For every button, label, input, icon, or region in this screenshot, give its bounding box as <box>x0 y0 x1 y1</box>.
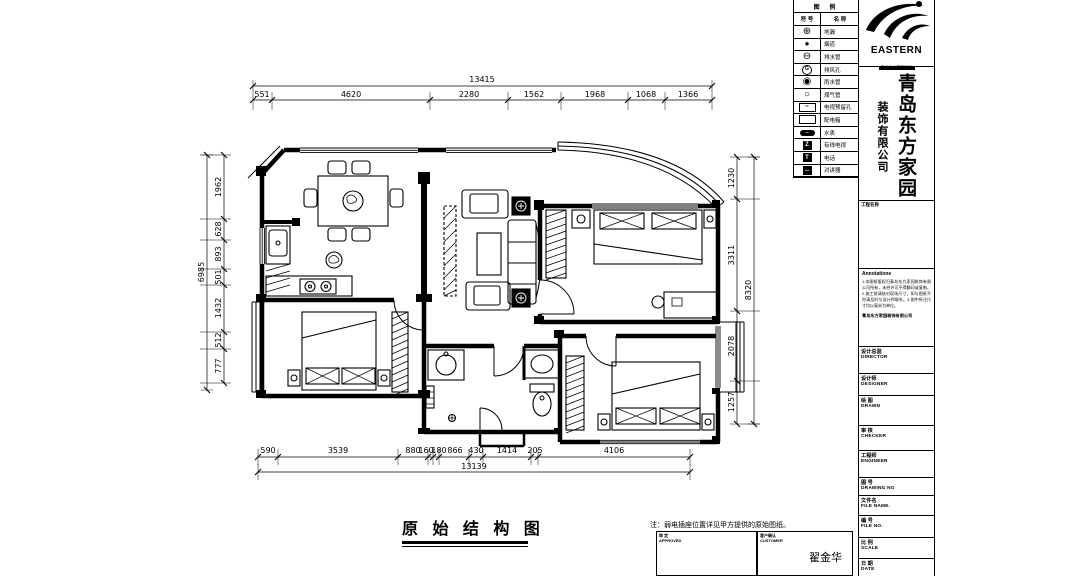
drawing-title-text: 原 始 结 构 图 <box>402 515 528 539</box>
annotations-heading: Annotations <box>862 271 931 277</box>
flue-icon <box>794 39 821 51</box>
legend-row: 有线电视 <box>794 139 859 152</box>
field-designer: 设计师 DESIGNER <box>859 373 934 395</box>
fine-print: 1.本图纸版权归青岛东方家园装饰有限公司所有，未经许可不得翻印或复制。2.施工前… <box>862 279 931 309</box>
svg-text:1414: 1414 <box>497 446 517 455</box>
power-box-icon <box>799 115 816 124</box>
intercom-icon <box>803 166 812 175</box>
company-suffix: 装饰有限公司 <box>874 101 890 200</box>
svg-text:590: 590 <box>260 446 275 455</box>
annotations: Annotations 1.本图纸版权归青岛东方家园装饰有限公司所有，未经许可不… <box>859 268 934 346</box>
floor-plan: 13415 551 4620 2280 1562 1968 1068 1366 … <box>0 0 800 576</box>
legend-table: 图 例 符 号 名 称 地漏 烟道 排水管 排风孔 雨水管 煤气管 电视预留孔 … <box>793 0 860 178</box>
project-name-box: 工程名称 <box>859 200 934 268</box>
svg-text:3311: 3311 <box>727 245 736 265</box>
legend-row: 煤气管 <box>794 89 859 102</box>
legend-row: 电视预留孔 <box>794 102 859 115</box>
svg-text:628: 628 <box>214 221 223 236</box>
tv-hole-icon <box>799 103 816 112</box>
bedroom3-furniture <box>288 312 408 396</box>
floor-drain-icon <box>794 26 821 38</box>
legend-row: 电话 <box>794 152 859 165</box>
gas-pipe-icon <box>794 89 821 101</box>
field-engineer: 工程师 ENGINEER <box>859 450 934 477</box>
title-block: EASTERN 青岛东方家园装饰 装饰有限公司 青岛东方家园 工程名称 Anno… <box>858 0 935 576</box>
company-logo: EASTERN 青岛东方家园装饰 <box>859 0 934 66</box>
field-file-no: 编 号 FILE NO. <box>859 515 934 537</box>
bedroom2-furniture <box>566 356 714 433</box>
svg-text:430: 430 <box>468 446 483 455</box>
svg-text:1366: 1366 <box>678 90 698 99</box>
approval-label-en: APPROVED <box>659 538 681 543</box>
legend-row: 地漏 <box>794 26 859 39</box>
svg-text:777: 777 <box>214 358 223 373</box>
svg-text:1068: 1068 <box>636 90 656 99</box>
approval-box: 审 定 APPROVED <box>656 531 757 576</box>
svg-text:4106: 4106 <box>604 446 624 455</box>
customer-box: 客户确认 CUSTOMER 翟金华 <box>757 531 853 576</box>
cable-tv-icon <box>803 141 812 150</box>
drawing-title: 原 始 结 构 图 <box>402 515 528 547</box>
legend-row: 排风孔 <box>794 64 859 77</box>
svg-text:866: 866 <box>447 446 462 455</box>
field-director: 设计总监 DIRECTOR <box>859 346 934 373</box>
fine-print-footer: 青岛东方家园装饰有限公司 <box>862 313 931 319</box>
field-drawn: 绘 图 DRAWN <box>859 395 934 425</box>
drawing-sheet: 13415 551 4620 2280 1562 1968 1068 1366 … <box>0 0 1074 576</box>
field-checker: 审 核 CHECKER <box>859 425 934 450</box>
title-underline-2 <box>402 546 528 547</box>
company-main: 青岛东方家园 <box>892 73 919 200</box>
eastern-logo-icon <box>862 0 932 42</box>
phone-icon <box>803 153 812 162</box>
water-meter-icon <box>800 130 815 136</box>
title-underline <box>402 541 528 544</box>
svg-text:551: 551 <box>254 90 269 99</box>
legend-row: 雨水管 <box>794 76 859 89</box>
rain-pipe-icon <box>794 76 821 88</box>
field-date: 日 期 DATE <box>859 558 934 576</box>
legend-row: 水表 <box>794 127 859 140</box>
project-label: 工程名称 <box>861 202 932 208</box>
svg-text:205: 205 <box>527 446 542 455</box>
customer-label-en: CUSTOMER <box>760 538 783 543</box>
customer-name: 翟金华 <box>760 543 850 565</box>
svg-text:1432: 1432 <box>214 298 223 318</box>
field-file-name: 文件名 FILE NAME. <box>859 495 934 515</box>
legend-col-symbol: 符 号 <box>794 13 821 25</box>
dim-bottom-total: 13139 <box>461 462 486 471</box>
svg-text:893: 893 <box>214 246 223 261</box>
drawing-note: 注：弱电插座位置详见甲方提供的原始图纸。 <box>650 520 790 530</box>
svg-text:1968: 1968 <box>585 90 605 99</box>
legend-title: 图 例 <box>794 0 859 13</box>
kitchen-furniture <box>266 226 352 296</box>
vent-hole-icon <box>802 65 812 75</box>
svg-text:4620: 4620 <box>341 90 361 99</box>
legend-col-name: 名 称 <box>821 13 859 25</box>
company-name: 装饰有限公司 青岛东方家园 <box>859 66 934 200</box>
dim-top-total: 13415 <box>469 75 494 84</box>
svg-text:2078: 2078 <box>727 336 736 356</box>
svg-text:1257: 1257 <box>727 392 736 412</box>
svg-text:3539: 3539 <box>328 446 348 455</box>
legend-row: 对讲器 <box>794 165 859 178</box>
field-drawing-no: 图 号 DRAWING NO <box>859 477 934 495</box>
living-furniture <box>444 190 541 310</box>
legend-row: 配电箱 <box>794 114 859 127</box>
svg-text:180: 180 <box>431 446 446 455</box>
svg-text:1230: 1230 <box>727 168 736 188</box>
bathroom-fixtures <box>426 350 560 422</box>
dining-furniture <box>304 161 403 241</box>
legend-row: 烟道 <box>794 39 859 52</box>
svg-text:1562: 1562 <box>524 90 544 99</box>
dim-left-total: 6985 <box>197 262 206 282</box>
dim-right-total: 8320 <box>744 280 753 300</box>
svg-text:512: 512 <box>214 332 223 347</box>
field-scale: 比 例 SCALE <box>859 537 934 558</box>
svg-text:2280: 2280 <box>459 90 479 99</box>
svg-text:501: 501 <box>214 269 223 284</box>
svg-text:1962: 1962 <box>214 177 223 197</box>
logo-text: EASTERN <box>859 45 934 56</box>
bay-windows <box>248 142 744 392</box>
drain-pipe-icon <box>794 51 821 63</box>
legend-row: 排水管 <box>794 51 859 64</box>
